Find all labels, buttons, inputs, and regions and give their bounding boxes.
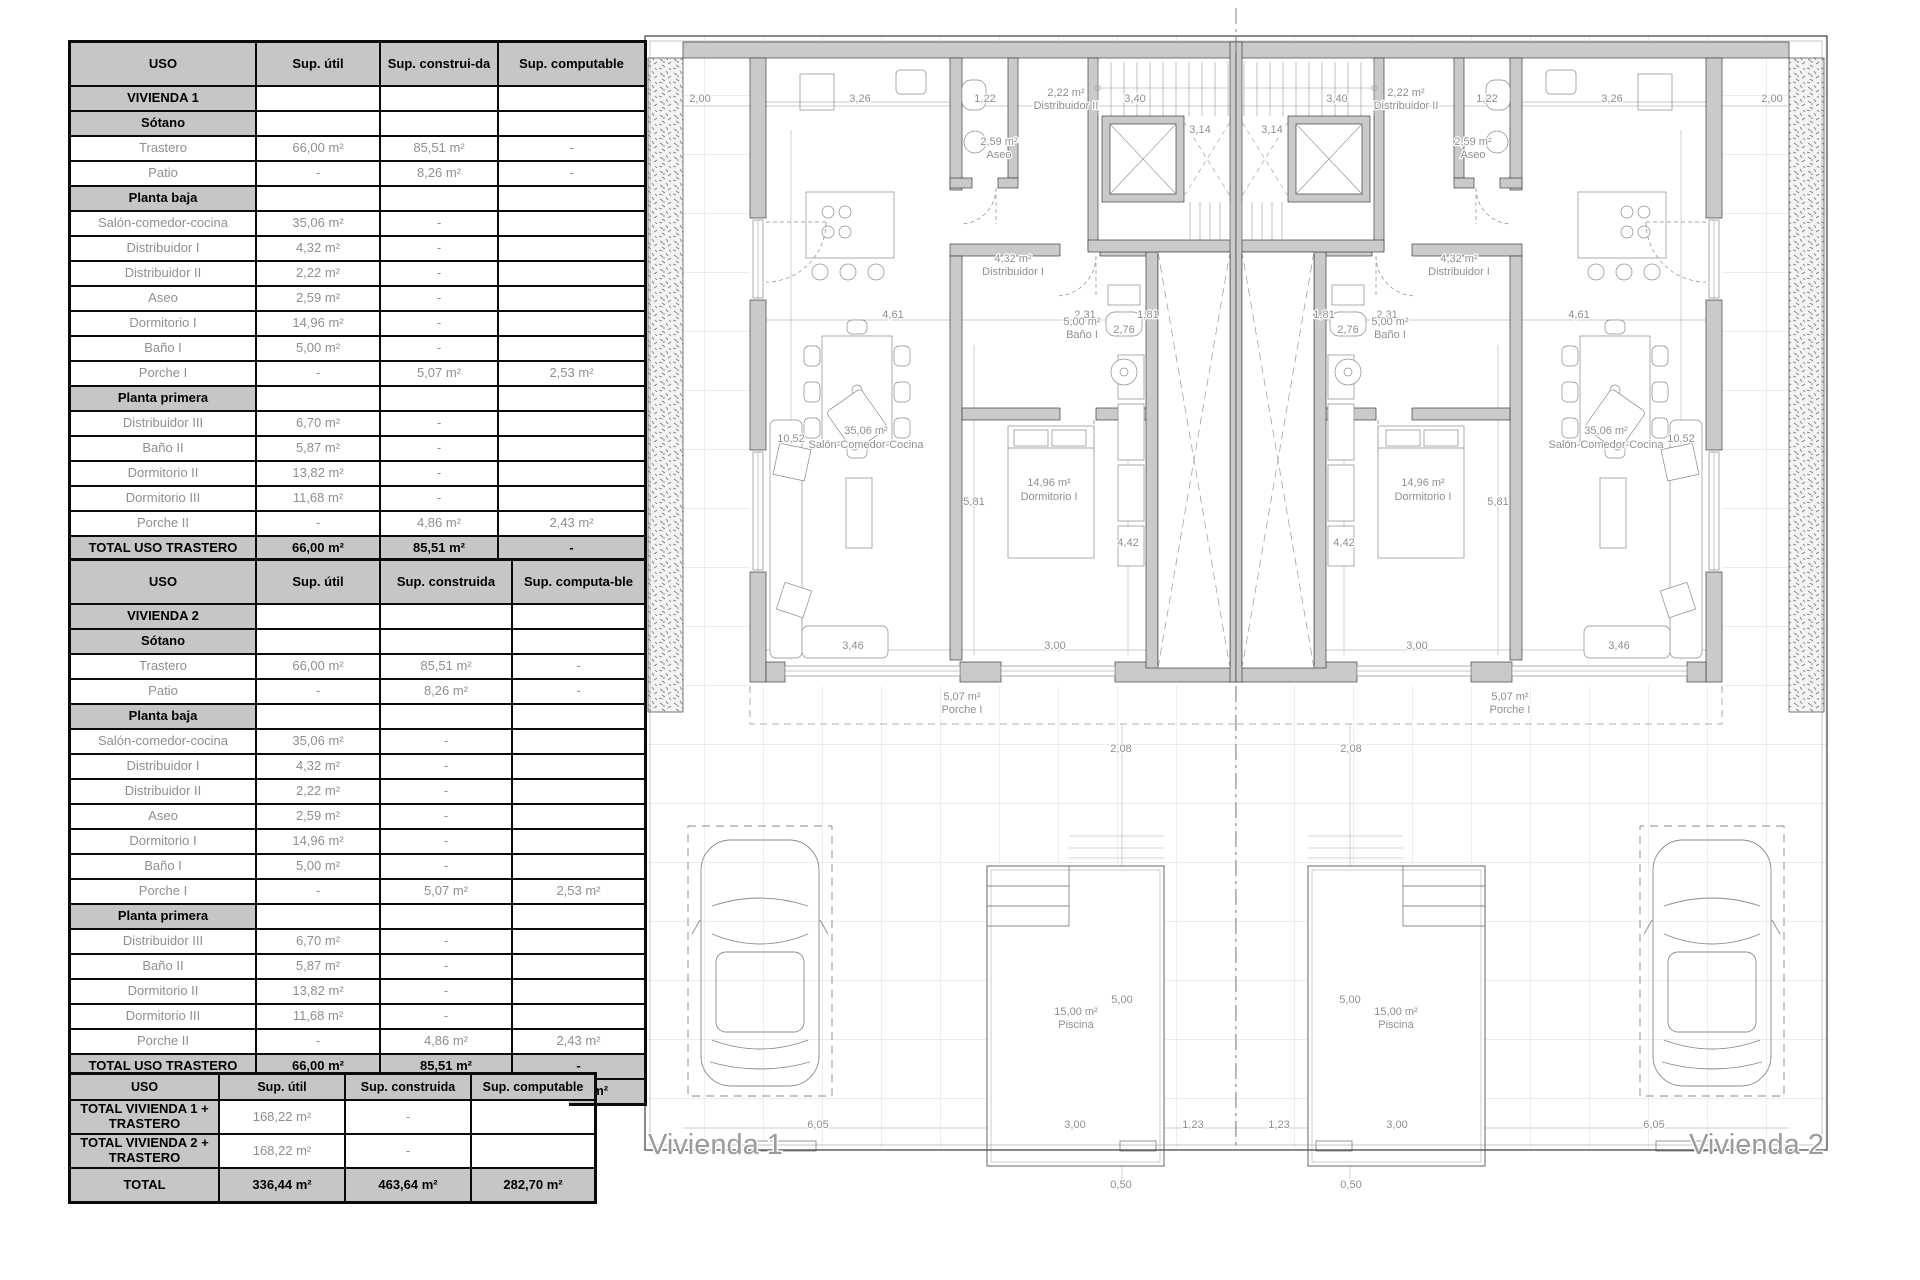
- table-row: Salón-comedor-cocina35,06 m²-: [70, 211, 646, 236]
- value-cell: -: [380, 854, 512, 879]
- uso-cell: Planta primera: [70, 904, 257, 929]
- room-label-porche1-name: Porche I: [942, 704, 983, 716]
- value-cell: [512, 754, 646, 779]
- value-cell: [256, 904, 380, 929]
- uso-cell: VIVIENDA 1: [70, 86, 257, 111]
- room-label-bano1-name: Baño I: [1374, 329, 1406, 341]
- column-header: Sup. construida: [380, 560, 512, 605]
- uso-cell: Porche II: [70, 1029, 257, 1054]
- value-cell: -: [256, 511, 380, 536]
- dim-label: 3,46: [842, 640, 863, 652]
- uso-cell: Baño I: [70, 336, 257, 361]
- value-cell: 85,51 m²: [380, 136, 498, 161]
- uso-cell: Dormitorio III: [70, 486, 257, 511]
- column-header: Sup. computable: [471, 1074, 596, 1101]
- dim-label: 5,81: [1487, 496, 1508, 508]
- room-label-piscina-name: Piscina: [1058, 1019, 1094, 1031]
- value-cell: [498, 336, 646, 361]
- uso-cell: Dormitorio II: [70, 979, 257, 1004]
- gravel-strip: [1789, 58, 1824, 712]
- table-row: Trastero66,00 m²85,51 m²-: [70, 136, 646, 161]
- column-header: Sup. útil: [256, 42, 380, 87]
- uso-cell: Sótano: [70, 629, 257, 654]
- table-row: Baño I5,00 m²-: [70, 854, 646, 879]
- table-row: Aseo2,59 m²-: [70, 286, 646, 311]
- room-label-porche1-area: 5,07 m²: [943, 691, 981, 703]
- table-row: Planta baja: [70, 704, 646, 729]
- value-cell: -: [256, 1029, 380, 1054]
- dim-label: 3,26: [1601, 93, 1622, 105]
- table-row: Sótano: [70, 111, 646, 136]
- value-cell: 35,06 m²: [256, 211, 380, 236]
- table-row: Distribuidor II2,22 m²-: [70, 261, 646, 286]
- value-cell: -: [380, 1004, 512, 1029]
- column-header: Sup. construida: [345, 1074, 471, 1101]
- value-cell: -: [380, 236, 498, 261]
- value-cell: 66,00 m²: [256, 654, 380, 679]
- dim-label: 2,08: [1110, 743, 1131, 755]
- uso-cell: Aseo: [70, 804, 257, 829]
- table-row: Distribuidor III6,70 m²-: [70, 929, 646, 954]
- value-cell: [498, 286, 646, 311]
- value-cell: 8,26 m²: [380, 679, 512, 704]
- table-row: Distribuidor II2,22 m²-: [70, 779, 646, 804]
- value-cell: [512, 954, 646, 979]
- dim-label: 2,00: [1761, 93, 1782, 105]
- dim-label: 1,23: [1182, 1119, 1203, 1131]
- table-row: Distribuidor I4,32 m²-: [70, 236, 646, 261]
- uso-cell: Planta baja: [70, 186, 257, 211]
- uso-cell: Dormitorio III: [70, 1004, 257, 1029]
- value-cell: [512, 854, 646, 879]
- dim-label: 5,00: [1339, 994, 1360, 1006]
- table-row: Dormitorio I14,96 m²-: [70, 829, 646, 854]
- room-label-distribuidor2-name: Distribuidor II: [1034, 100, 1099, 112]
- value-cell: [512, 929, 646, 954]
- dim-label: 5,81: [963, 496, 984, 508]
- value-cell: [498, 461, 646, 486]
- value-cell: [471, 1100, 596, 1134]
- room-label-salon-area: 35,06 m²: [844, 425, 888, 437]
- dim-label: 10,52: [1667, 433, 1695, 445]
- value-cell: -: [380, 461, 498, 486]
- value-cell: 5,07 m²: [380, 361, 498, 386]
- value-cell: [498, 236, 646, 261]
- uso-cell: Porche II: [70, 511, 257, 536]
- column-header: Sup. construi-da: [380, 42, 498, 87]
- table-row: TOTAL VIVIENDA 1 + TRASTERO168,22 m²-: [70, 1100, 596, 1134]
- value-cell: -: [498, 136, 646, 161]
- dim-label: 5,00: [1111, 994, 1132, 1006]
- table-row: Planta baja: [70, 186, 646, 211]
- dim-label: 6,05: [1643, 1119, 1664, 1131]
- value-cell: [380, 386, 498, 411]
- room-label-piscina-name: Piscina: [1378, 1019, 1414, 1031]
- table-row: Porche II-4,86 m²2,43 m²: [70, 511, 646, 536]
- value-cell: -: [512, 679, 646, 704]
- dim-label: 4,61: [882, 309, 903, 321]
- value-cell: 282,70 m²: [471, 1168, 596, 1203]
- room-label-piscina-area: 15,00 m²: [1374, 1006, 1418, 1018]
- value-cell: -: [380, 954, 512, 979]
- value-cell: -: [380, 729, 512, 754]
- header-row: USOSup. útilSup. construi-daSup. computa…: [70, 42, 646, 87]
- value-cell: 5,00 m²: [256, 336, 380, 361]
- dim-label: 0,50: [1340, 1179, 1361, 1191]
- value-cell: [512, 979, 646, 1004]
- room-label-salon-name: Salón-Comedor-Cocina: [809, 439, 925, 451]
- dim-label: 1,23: [1268, 1119, 1289, 1131]
- table-row: TOTAL336,44 m²463,64 m²282,70 m²: [70, 1168, 596, 1203]
- room-label-aseo-name: Aseo: [986, 149, 1011, 161]
- value-cell: [512, 804, 646, 829]
- uso-cell: Porche I: [70, 879, 257, 904]
- room-label-salon-name: Salón-Comedor-Cocina: [1549, 439, 1665, 451]
- value-cell: 6,70 m²: [256, 411, 380, 436]
- table-row: Planta primera: [70, 386, 646, 411]
- value-cell: -: [512, 654, 646, 679]
- column-header: Sup. útil: [219, 1074, 345, 1101]
- dim-label: 3,00: [1386, 1119, 1407, 1131]
- dim-label: 2,76: [1337, 324, 1358, 336]
- room-label-distribuidor2-name: Distribuidor II: [1374, 100, 1439, 112]
- table-row: Porche II-4,86 m²2,43 m²: [70, 1029, 646, 1054]
- value-cell: [498, 436, 646, 461]
- value-cell: 4,86 m²: [380, 511, 498, 536]
- uso-cell: Dormitorio II: [70, 461, 257, 486]
- uso-cell: TOTAL VIVIENDA 1 + TRASTERO: [70, 1100, 220, 1134]
- value-cell: -: [380, 754, 512, 779]
- table-row: Planta primera: [70, 904, 646, 929]
- value-cell: -: [256, 161, 380, 186]
- dim-label: 2,00: [689, 93, 710, 105]
- value-cell: [498, 111, 646, 136]
- value-cell: -: [380, 829, 512, 854]
- dim-label: 3,00: [1064, 1119, 1085, 1131]
- value-cell: -: [380, 286, 498, 311]
- value-cell: [380, 86, 498, 111]
- room-label-porche1-name: Porche I: [1490, 704, 1531, 716]
- column-header: USO: [70, 1074, 220, 1101]
- value-cell: [256, 704, 380, 729]
- value-cell: [498, 261, 646, 286]
- value-cell: 5,07 m²: [380, 879, 512, 904]
- room-label-dormitorio1-name: Dormitorio I: [1021, 491, 1078, 503]
- table-row: Porche I-5,07 m²2,53 m²: [70, 361, 646, 386]
- value-cell: -: [380, 779, 512, 804]
- value-cell: [471, 1134, 596, 1168]
- value-cell: [380, 904, 512, 929]
- table-row: Patio-8,26 m²-: [70, 679, 646, 704]
- table-row: Baño II5,87 m²-: [70, 954, 646, 979]
- column-header: USO: [70, 560, 257, 605]
- uso-cell: Dormitorio I: [70, 311, 257, 336]
- value-cell: 463,64 m²: [345, 1168, 471, 1203]
- dim-label: 10,52: [777, 433, 805, 445]
- table-row: VIVIENDA 1: [70, 86, 646, 111]
- table-row: Porche I-5,07 m²2,53 m²: [70, 879, 646, 904]
- value-cell: [256, 111, 380, 136]
- room-label-distribuidor2-area: 2,22 m²: [1387, 87, 1425, 99]
- value-cell: [256, 604, 380, 629]
- uso-cell: Patio: [70, 679, 257, 704]
- table-row: Baño II5,87 m²-: [70, 436, 646, 461]
- table-row: Sótano: [70, 629, 646, 654]
- uso-cell: Distribuidor II: [70, 779, 257, 804]
- column-header: Sup. computa-ble: [512, 560, 646, 605]
- value-cell: 11,68 m²: [256, 1004, 380, 1029]
- value-cell: -: [256, 879, 380, 904]
- room-label-aseo-area: 2,59 m²: [1454, 136, 1492, 148]
- uso-cell: Distribuidor III: [70, 929, 257, 954]
- dim-label: 1,81: [1313, 309, 1334, 321]
- room-label-distribuidor1-name: Distribuidor I: [982, 266, 1044, 278]
- value-cell: -: [380, 336, 498, 361]
- uso-cell: Distribuidor I: [70, 754, 257, 779]
- table-row: Dormitorio III11,68 m²-: [70, 1004, 646, 1029]
- dim-label: 3,14: [1261, 124, 1282, 136]
- value-cell: [498, 386, 646, 411]
- dim-label: 3,46: [1608, 640, 1629, 652]
- uso-cell: Salón-comedor-cocina: [70, 729, 257, 754]
- value-cell: [512, 904, 646, 929]
- uso-cell: Dormitorio I: [70, 829, 257, 854]
- value-cell: [380, 704, 512, 729]
- value-cell: [498, 211, 646, 236]
- value-cell: 2,59 m²: [256, 804, 380, 829]
- room-label-aseo-name: Aseo: [1460, 149, 1485, 161]
- value-cell: -: [498, 161, 646, 186]
- value-cell: 4,32 m²: [256, 236, 380, 261]
- value-cell: [256, 386, 380, 411]
- totals-surface-table: USOSup. útilSup. construidaSup. computab…: [68, 1072, 569, 1204]
- vivienda2-surface-table: USOSup. útilSup. construidaSup. computa-…: [68, 558, 619, 1106]
- value-cell: 5,87 m²: [256, 436, 380, 461]
- uso-cell: Planta primera: [70, 386, 257, 411]
- table-row: Aseo2,59 m²-: [70, 804, 646, 829]
- value-cell: [380, 629, 512, 654]
- uso-cell: Baño I: [70, 854, 257, 879]
- uso-cell: Planta baja: [70, 704, 257, 729]
- value-cell: [380, 111, 498, 136]
- dim-label: 2,08: [1340, 743, 1361, 755]
- dim-label: 0,50: [1110, 1179, 1131, 1191]
- value-cell: 8,26 m²: [380, 161, 498, 186]
- value-cell: [512, 779, 646, 804]
- value-cell: 2,43 m²: [498, 511, 646, 536]
- uso-cell: Trastero: [70, 654, 257, 679]
- dim-label: 3,14: [1189, 124, 1210, 136]
- table-row: Dormitorio II13,82 m²-: [70, 979, 646, 1004]
- value-cell: [256, 629, 380, 654]
- value-cell: -: [345, 1100, 471, 1134]
- table-row: Salón-comedor-cocina35,06 m²-: [70, 729, 646, 754]
- value-cell: [512, 729, 646, 754]
- table-row: Dormitorio II13,82 m²-: [70, 461, 646, 486]
- value-cell: 14,96 m²: [256, 311, 380, 336]
- dim-label: 3,00: [1406, 640, 1427, 652]
- uso-cell: Distribuidor III: [70, 411, 257, 436]
- value-cell: 2,59 m²: [256, 286, 380, 311]
- room-label-porche1-area: 5,07 m²: [1491, 691, 1529, 703]
- room-label-salon-area: 35,06 m²: [1584, 425, 1628, 437]
- uso-cell: Aseo: [70, 286, 257, 311]
- dim-label: 4,42: [1117, 537, 1138, 549]
- table-row: Distribuidor III6,70 m²-: [70, 411, 646, 436]
- value-cell: [512, 1004, 646, 1029]
- room-label-bano1-area: 5,00 m²: [1371, 316, 1409, 328]
- vivienda2-title: Vivienda 2: [1689, 1129, 1824, 1161]
- uso-cell: Distribuidor I: [70, 236, 257, 261]
- uso-cell: Distribuidor II: [70, 261, 257, 286]
- value-cell: [256, 186, 380, 211]
- header-row: USOSup. útilSup. construidaSup. computa-…: [70, 560, 646, 605]
- value-cell: 2,53 m²: [512, 879, 646, 904]
- dim-label: 3,40: [1124, 93, 1145, 105]
- room-label-distribuidor1-name: Distribuidor I: [1428, 266, 1490, 278]
- uso-cell: Sótano: [70, 111, 257, 136]
- room-label-bano1-area: 5,00 m²: [1063, 316, 1101, 328]
- column-header: Sup. útil: [256, 560, 380, 605]
- dim-label: 3,40: [1326, 93, 1347, 105]
- value-cell: 4,32 m²: [256, 754, 380, 779]
- dim-label: 3,26: [849, 93, 870, 105]
- vivienda1-title: Vivienda 1: [648, 1129, 783, 1161]
- room-label-bano1-name: Baño I: [1066, 329, 1098, 341]
- room-label-piscina-area: 15,00 m²: [1054, 1006, 1098, 1018]
- value-cell: 4,86 m²: [380, 1029, 512, 1054]
- room-label-dormitorio1-name: Dormitorio I: [1395, 491, 1452, 503]
- value-cell: 2,53 m²: [498, 361, 646, 386]
- value-cell: -: [380, 486, 498, 511]
- value-cell: [512, 604, 646, 629]
- value-cell: [498, 86, 646, 111]
- room-label-distribuidor1-area: 4,32 m²: [994, 253, 1032, 265]
- table-row: Distribuidor I4,32 m²-: [70, 754, 646, 779]
- table-row: Dormitorio I14,96 m²-: [70, 311, 646, 336]
- value-cell: 2,22 m²: [256, 779, 380, 804]
- value-cell: -: [345, 1134, 471, 1168]
- uso-cell: Trastero: [70, 136, 257, 161]
- dim-label: 3,00: [1044, 640, 1065, 652]
- value-cell: 35,06 m²: [256, 729, 380, 754]
- value-cell: 5,00 m²: [256, 854, 380, 879]
- room-label-dormitorio1-area: 14,96 m²: [1401, 477, 1445, 489]
- dim-label: 2,76: [1113, 324, 1134, 336]
- value-cell: [498, 486, 646, 511]
- value-cell: [512, 704, 646, 729]
- value-cell: 13,82 m²: [256, 979, 380, 1004]
- uso-cell: Baño II: [70, 436, 257, 461]
- value-cell: 66,00 m²: [256, 136, 380, 161]
- value-cell: -: [380, 261, 498, 286]
- dim-label: 4,42: [1333, 537, 1354, 549]
- dim-label: 1,22: [1476, 93, 1497, 105]
- column-header: Sup. computable: [498, 42, 646, 87]
- value-cell: -: [380, 211, 498, 236]
- value-cell: [498, 311, 646, 336]
- table-row: TOTAL VIVIENDA 2 + TRASTERO168,22 m²-: [70, 1134, 596, 1168]
- uso-cell: VIVIENDA 2: [70, 604, 257, 629]
- column-header: USO: [70, 42, 257, 87]
- uso-cell: Salón-comedor-cocina: [70, 211, 257, 236]
- value-cell: 336,44 m²: [219, 1168, 345, 1203]
- value-cell: 85,51 m²: [380, 654, 512, 679]
- value-cell: -: [380, 436, 498, 461]
- room-label-distribuidor1-area: 4,32 m²: [1440, 253, 1478, 265]
- header-row: USOSup. útilSup. construidaSup. computab…: [70, 1074, 596, 1101]
- table-row: Patio-8,26 m²-: [70, 161, 646, 186]
- value-cell: [498, 186, 646, 211]
- value-cell: 6,70 m²: [256, 929, 380, 954]
- value-cell: [512, 629, 646, 654]
- table-row: Baño I5,00 m²-: [70, 336, 646, 361]
- value-cell: [380, 186, 498, 211]
- room-label-dormitorio1-area: 14,96 m²: [1027, 477, 1071, 489]
- value-cell: 168,22 m²: [219, 1134, 345, 1168]
- value-cell: [380, 604, 512, 629]
- vivienda1-surface-table: USOSup. útilSup. construi-daSup. computa…: [68, 40, 619, 588]
- table-row: Trastero66,00 m²85,51 m²-: [70, 654, 646, 679]
- room-label-aseo-area: 2,59 m²: [980, 136, 1018, 148]
- value-cell: [512, 829, 646, 854]
- table-row: VIVIENDA 2: [70, 604, 646, 629]
- value-cell: 5,87 m²: [256, 954, 380, 979]
- uso-cell: Patio: [70, 161, 257, 186]
- value-cell: 168,22 m²: [219, 1100, 345, 1134]
- table-row: Dormitorio III11,68 m²-: [70, 486, 646, 511]
- value-cell: -: [380, 804, 512, 829]
- value-cell: -: [256, 679, 380, 704]
- value-cell: [498, 411, 646, 436]
- uso-cell: Baño II: [70, 954, 257, 979]
- value-cell: -: [380, 411, 498, 436]
- uso-cell: TOTAL: [70, 1168, 220, 1203]
- value-cell: -: [380, 311, 498, 336]
- value-cell: 14,96 m²: [256, 829, 380, 854]
- value-cell: 11,68 m²: [256, 486, 380, 511]
- dim-label: 4,61: [1568, 309, 1589, 321]
- gravel-strip: [648, 58, 683, 712]
- dim-label: 6,05: [807, 1119, 828, 1131]
- value-cell: 2,22 m²: [256, 261, 380, 286]
- dim-label: 1,22: [974, 93, 995, 105]
- value-cell: [256, 86, 380, 111]
- value-cell: 2,43 m²: [512, 1029, 646, 1054]
- dim-label: 1,81: [1137, 309, 1158, 321]
- value-cell: -: [256, 361, 380, 386]
- room-label-distribuidor2-area: 2,22 m²: [1047, 87, 1085, 99]
- value-cell: -: [380, 929, 512, 954]
- value-cell: 13,82 m²: [256, 461, 380, 486]
- uso-cell: TOTAL VIVIENDA 2 + TRASTERO: [70, 1134, 220, 1168]
- value-cell: -: [380, 979, 512, 1004]
- uso-cell: Porche I: [70, 361, 257, 386]
